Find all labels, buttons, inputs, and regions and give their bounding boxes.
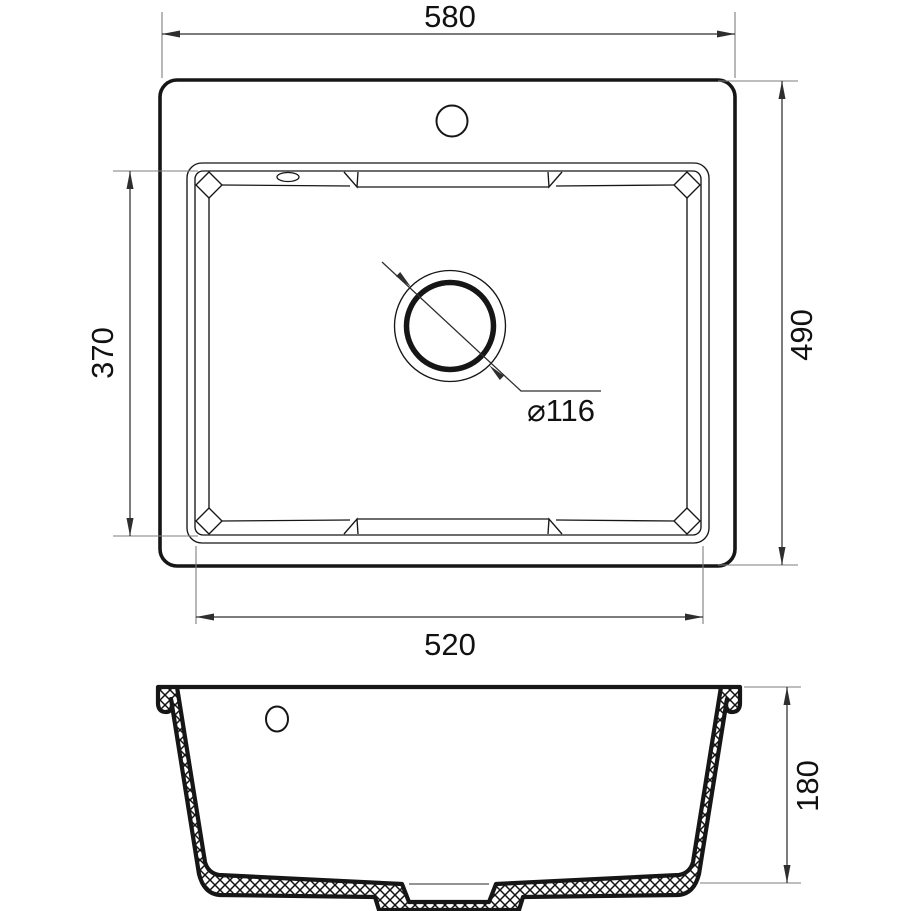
wall-bevel-bottom-right [548, 519, 562, 534]
bowl-rim-outer [187, 163, 709, 543]
wall-bevel-top-right [548, 172, 562, 187]
dimension-label-drain-diameter: ⌀116 [527, 393, 595, 428]
section-view [158, 687, 740, 910]
wall-bevel-bottom-left [344, 519, 358, 534]
arrowhead [779, 81, 786, 99]
dimension-label-overall-width: 580 [424, 0, 476, 34]
arrowhead [196, 614, 214, 621]
arrowhead [784, 865, 791, 883]
extension-lines [113, 12, 801, 883]
arrowhead [127, 171, 134, 189]
bowl-wall-edges [209, 172, 687, 534]
sink-drawing-svg: 580 490 370 520 ⌀116 180 [0, 0, 911, 911]
dimension-label-section-height: 180 [790, 760, 825, 812]
wall-edge-bottom-left [222, 520, 350, 521]
section-faucet-hole [266, 707, 288, 732]
corner-chamfer-bottom-left [196, 508, 222, 534]
wall-edge-top-left [222, 185, 350, 186]
arrowhead [779, 547, 786, 565]
wall-bevel-top-left [344, 172, 358, 187]
wall-edge-top-right [556, 185, 674, 186]
drain-recess-circle [395, 271, 506, 382]
section-material-profile [158, 687, 740, 910]
technical-drawing-canvas: 580 490 370 520 ⌀116 180 [0, 0, 911, 911]
arrowhead [784, 687, 791, 705]
dimension-labels: 580 490 370 520 ⌀116 180 [85, 0, 825, 812]
faucet-hole [437, 106, 468, 137]
overflow-slot [277, 173, 299, 182]
dimension-label-overall-depth: 490 [784, 309, 819, 361]
bowl-opening [195, 171, 701, 535]
corner-chamfer-bottom-right [674, 508, 700, 534]
arrowhead [685, 614, 703, 621]
arrowheads [127, 31, 791, 884]
drain-hole-circle [407, 283, 494, 370]
dimension-label-bowl-width: 520 [424, 627, 476, 662]
corner-chamfer-top-right [674, 172, 700, 198]
arrowhead [717, 31, 735, 38]
arrowhead [162, 31, 180, 38]
corner-chamfer-top-left [196, 172, 222, 198]
dimension-label-bowl-depth: 370 [85, 327, 120, 379]
arrowhead [396, 272, 411, 287]
wall-edge-bottom-right [556, 520, 674, 521]
arrowhead [127, 518, 134, 536]
dimension-lines [130, 34, 787, 883]
